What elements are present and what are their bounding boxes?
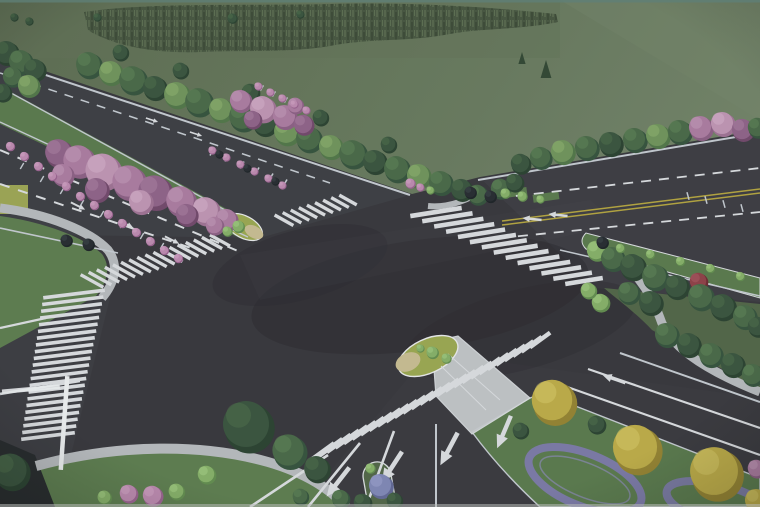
photo-top-edge <box>0 0 760 3</box>
intersection-rendering-photo <box>0 0 760 507</box>
photo-vignette <box>0 0 760 507</box>
rendering-scene <box>0 0 760 507</box>
